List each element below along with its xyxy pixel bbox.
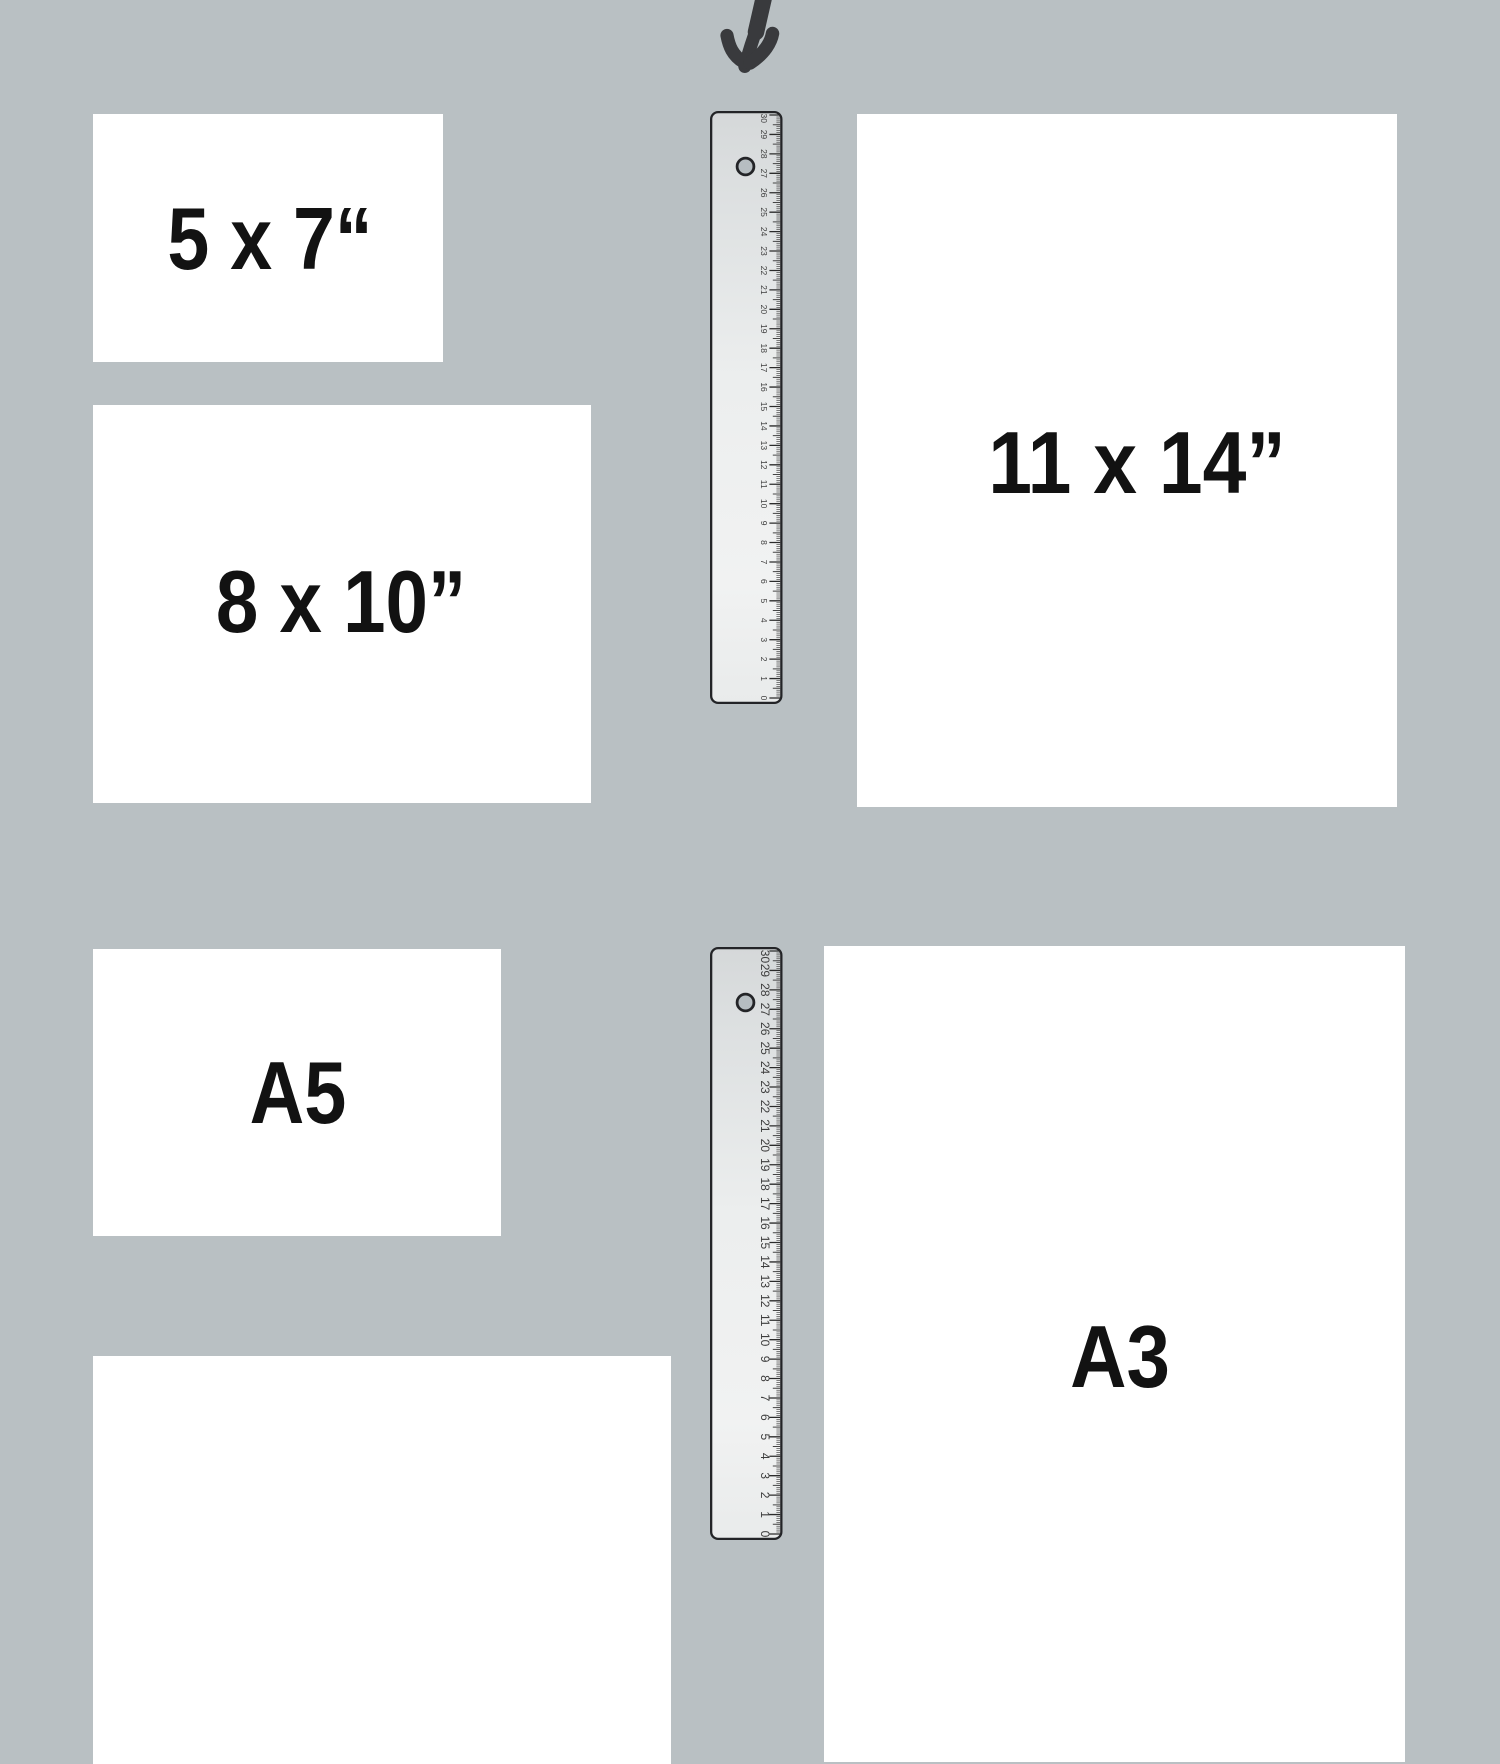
svg-text:29: 29 [758,964,772,978]
svg-text:13: 13 [758,1275,772,1289]
svg-text:26: 26 [759,188,769,198]
svg-text:15: 15 [758,1236,772,1250]
svg-text:22: 22 [758,1100,772,1114]
svg-text:5: 5 [758,1433,772,1440]
svg-text:1: 1 [758,1511,772,1518]
svg-text:2: 2 [758,1492,772,1499]
svg-text:30: 30 [758,950,772,964]
svg-text:10: 10 [758,1333,772,1347]
svg-text:5: 5 [759,598,769,603]
svg-text:8: 8 [759,540,769,545]
svg-text:1: 1 [759,676,769,681]
svg-text:18: 18 [758,1178,772,1192]
svg-text:6: 6 [758,1414,772,1421]
svg-text:14: 14 [759,421,769,431]
svg-text:26: 26 [758,1022,772,1036]
svg-text:21: 21 [758,1119,772,1133]
svg-text:4: 4 [758,1453,772,1460]
svg-text:3: 3 [759,637,769,642]
svg-text:11: 11 [758,1314,772,1327]
svg-text:15: 15 [759,402,769,412]
svg-text:12: 12 [758,1294,772,1308]
svg-text:17: 17 [758,1197,772,1211]
svg-text:11: 11 [759,480,769,489]
svg-text:4: 4 [759,618,769,623]
svg-text:0: 0 [758,1531,772,1538]
svg-text:16: 16 [759,382,769,392]
svg-text:9: 9 [758,1356,772,1363]
svg-text:24: 24 [758,1061,772,1075]
svg-text:19: 19 [758,1158,772,1172]
svg-text:9: 9 [759,521,769,526]
svg-text:8: 8 [758,1375,772,1382]
svg-text:24: 24 [759,227,769,237]
svg-text:17: 17 [759,363,769,373]
svg-text:13: 13 [759,441,769,451]
svg-text:20: 20 [759,305,769,315]
svg-text:10: 10 [759,499,769,509]
svg-text:12: 12 [759,460,769,470]
svg-text:21: 21 [759,285,769,295]
svg-text:0: 0 [759,696,769,701]
svg-text:19: 19 [759,324,769,334]
svg-text:28: 28 [759,149,769,159]
svg-text:22: 22 [759,266,769,276]
svg-text:27: 27 [759,169,769,179]
svg-text:6: 6 [759,579,769,584]
svg-text:29: 29 [759,130,769,140]
svg-text:7: 7 [758,1395,772,1402]
svg-text:23: 23 [758,1080,772,1094]
svg-text:30: 30 [759,113,769,123]
svg-text:23: 23 [759,246,769,256]
svg-text:2: 2 [759,657,769,662]
svg-text:18: 18 [759,343,769,353]
svg-text:20: 20 [758,1139,772,1153]
svg-text:27: 27 [758,1003,772,1017]
svg-text:25: 25 [758,1041,772,1055]
svg-text:16: 16 [758,1216,772,1230]
svg-text:28: 28 [758,983,772,997]
svg-text:3: 3 [758,1472,772,1479]
svg-text:25: 25 [759,207,769,217]
svg-text:7: 7 [759,560,769,565]
svg-text:14: 14 [758,1255,772,1269]
